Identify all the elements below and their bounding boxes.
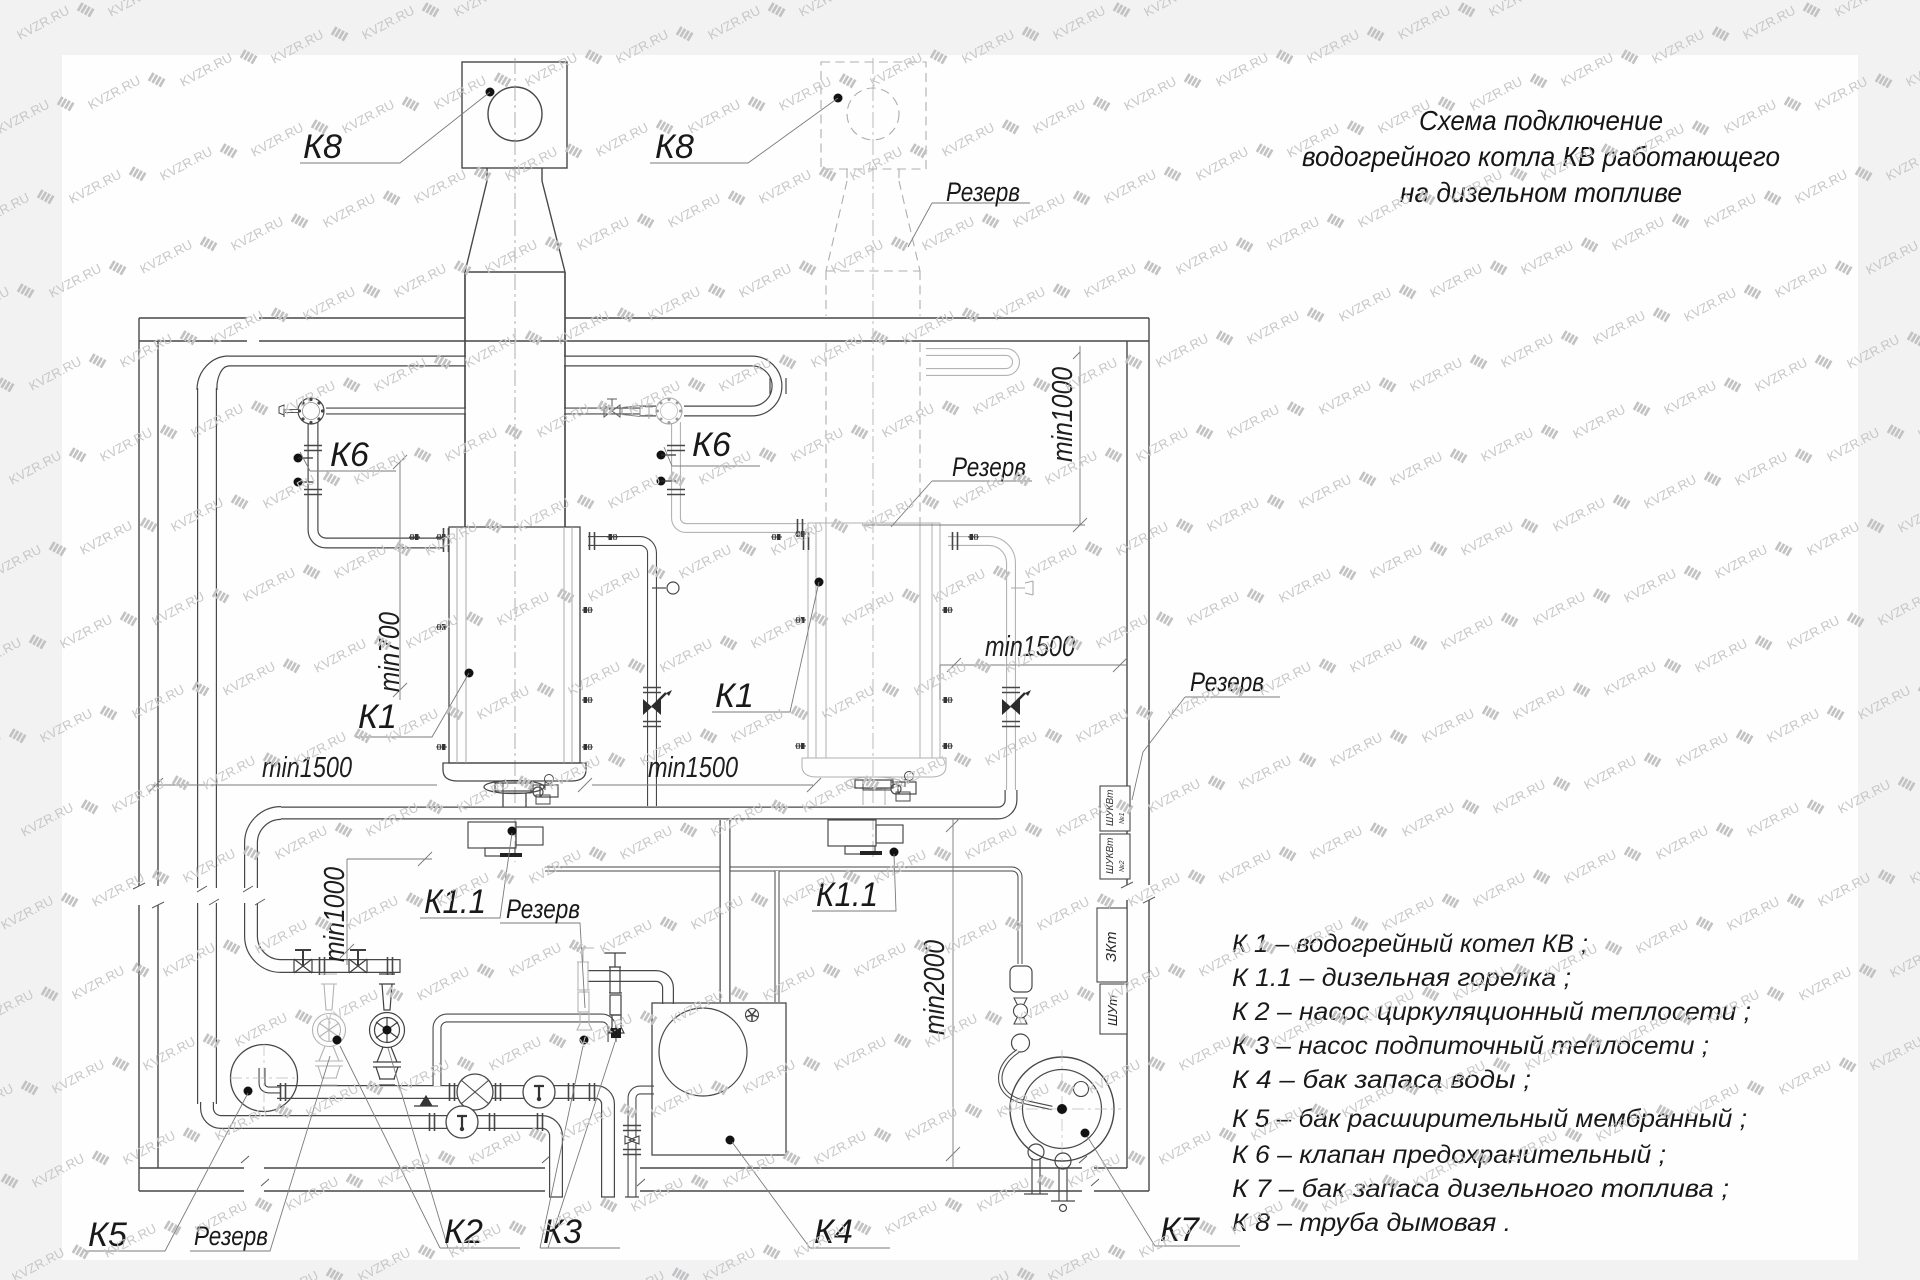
svg-text:К1: К1 [715, 677, 754, 715]
svg-text:К 1 – водогрейный котел КВ: К 1 – водогрейный котел КВ ; [1232, 930, 1588, 958]
svg-text:Резерв: Резерв [506, 894, 580, 924]
svg-text:№1: №1 [1119, 812, 1126, 824]
svg-text:min2000: min2000 [919, 940, 951, 1035]
svg-text:ЗКт: ЗКт [1103, 931, 1120, 962]
svg-text:водогрейного котла КВ работ: водогрейного котла КВ работающего [1302, 141, 1780, 172]
svg-text:К8: К8 [303, 128, 342, 166]
svg-text:К8: К8 [655, 128, 694, 166]
svg-text:Схема подключение: Схема подключение [1419, 105, 1663, 136]
svg-text:К 7 – бак запаса дизельного: К 7 – бак запаса дизельного топлива ; [1232, 1175, 1729, 1203]
svg-text:min1000: min1000 [319, 867, 351, 962]
svg-text:ШУКВт: ШУКВт [1105, 838, 1116, 875]
svg-text:№2: №2 [1119, 860, 1126, 872]
svg-text:min700: min700 [374, 612, 406, 692]
svg-text:К 5 – бак расширительный ме: К 5 – бак расширительный мембранный ; [1232, 1105, 1747, 1133]
svg-text:Резерв: Резерв [946, 177, 1020, 207]
svg-text:на дизельном топливе: на дизельном топливе [1400, 177, 1682, 208]
